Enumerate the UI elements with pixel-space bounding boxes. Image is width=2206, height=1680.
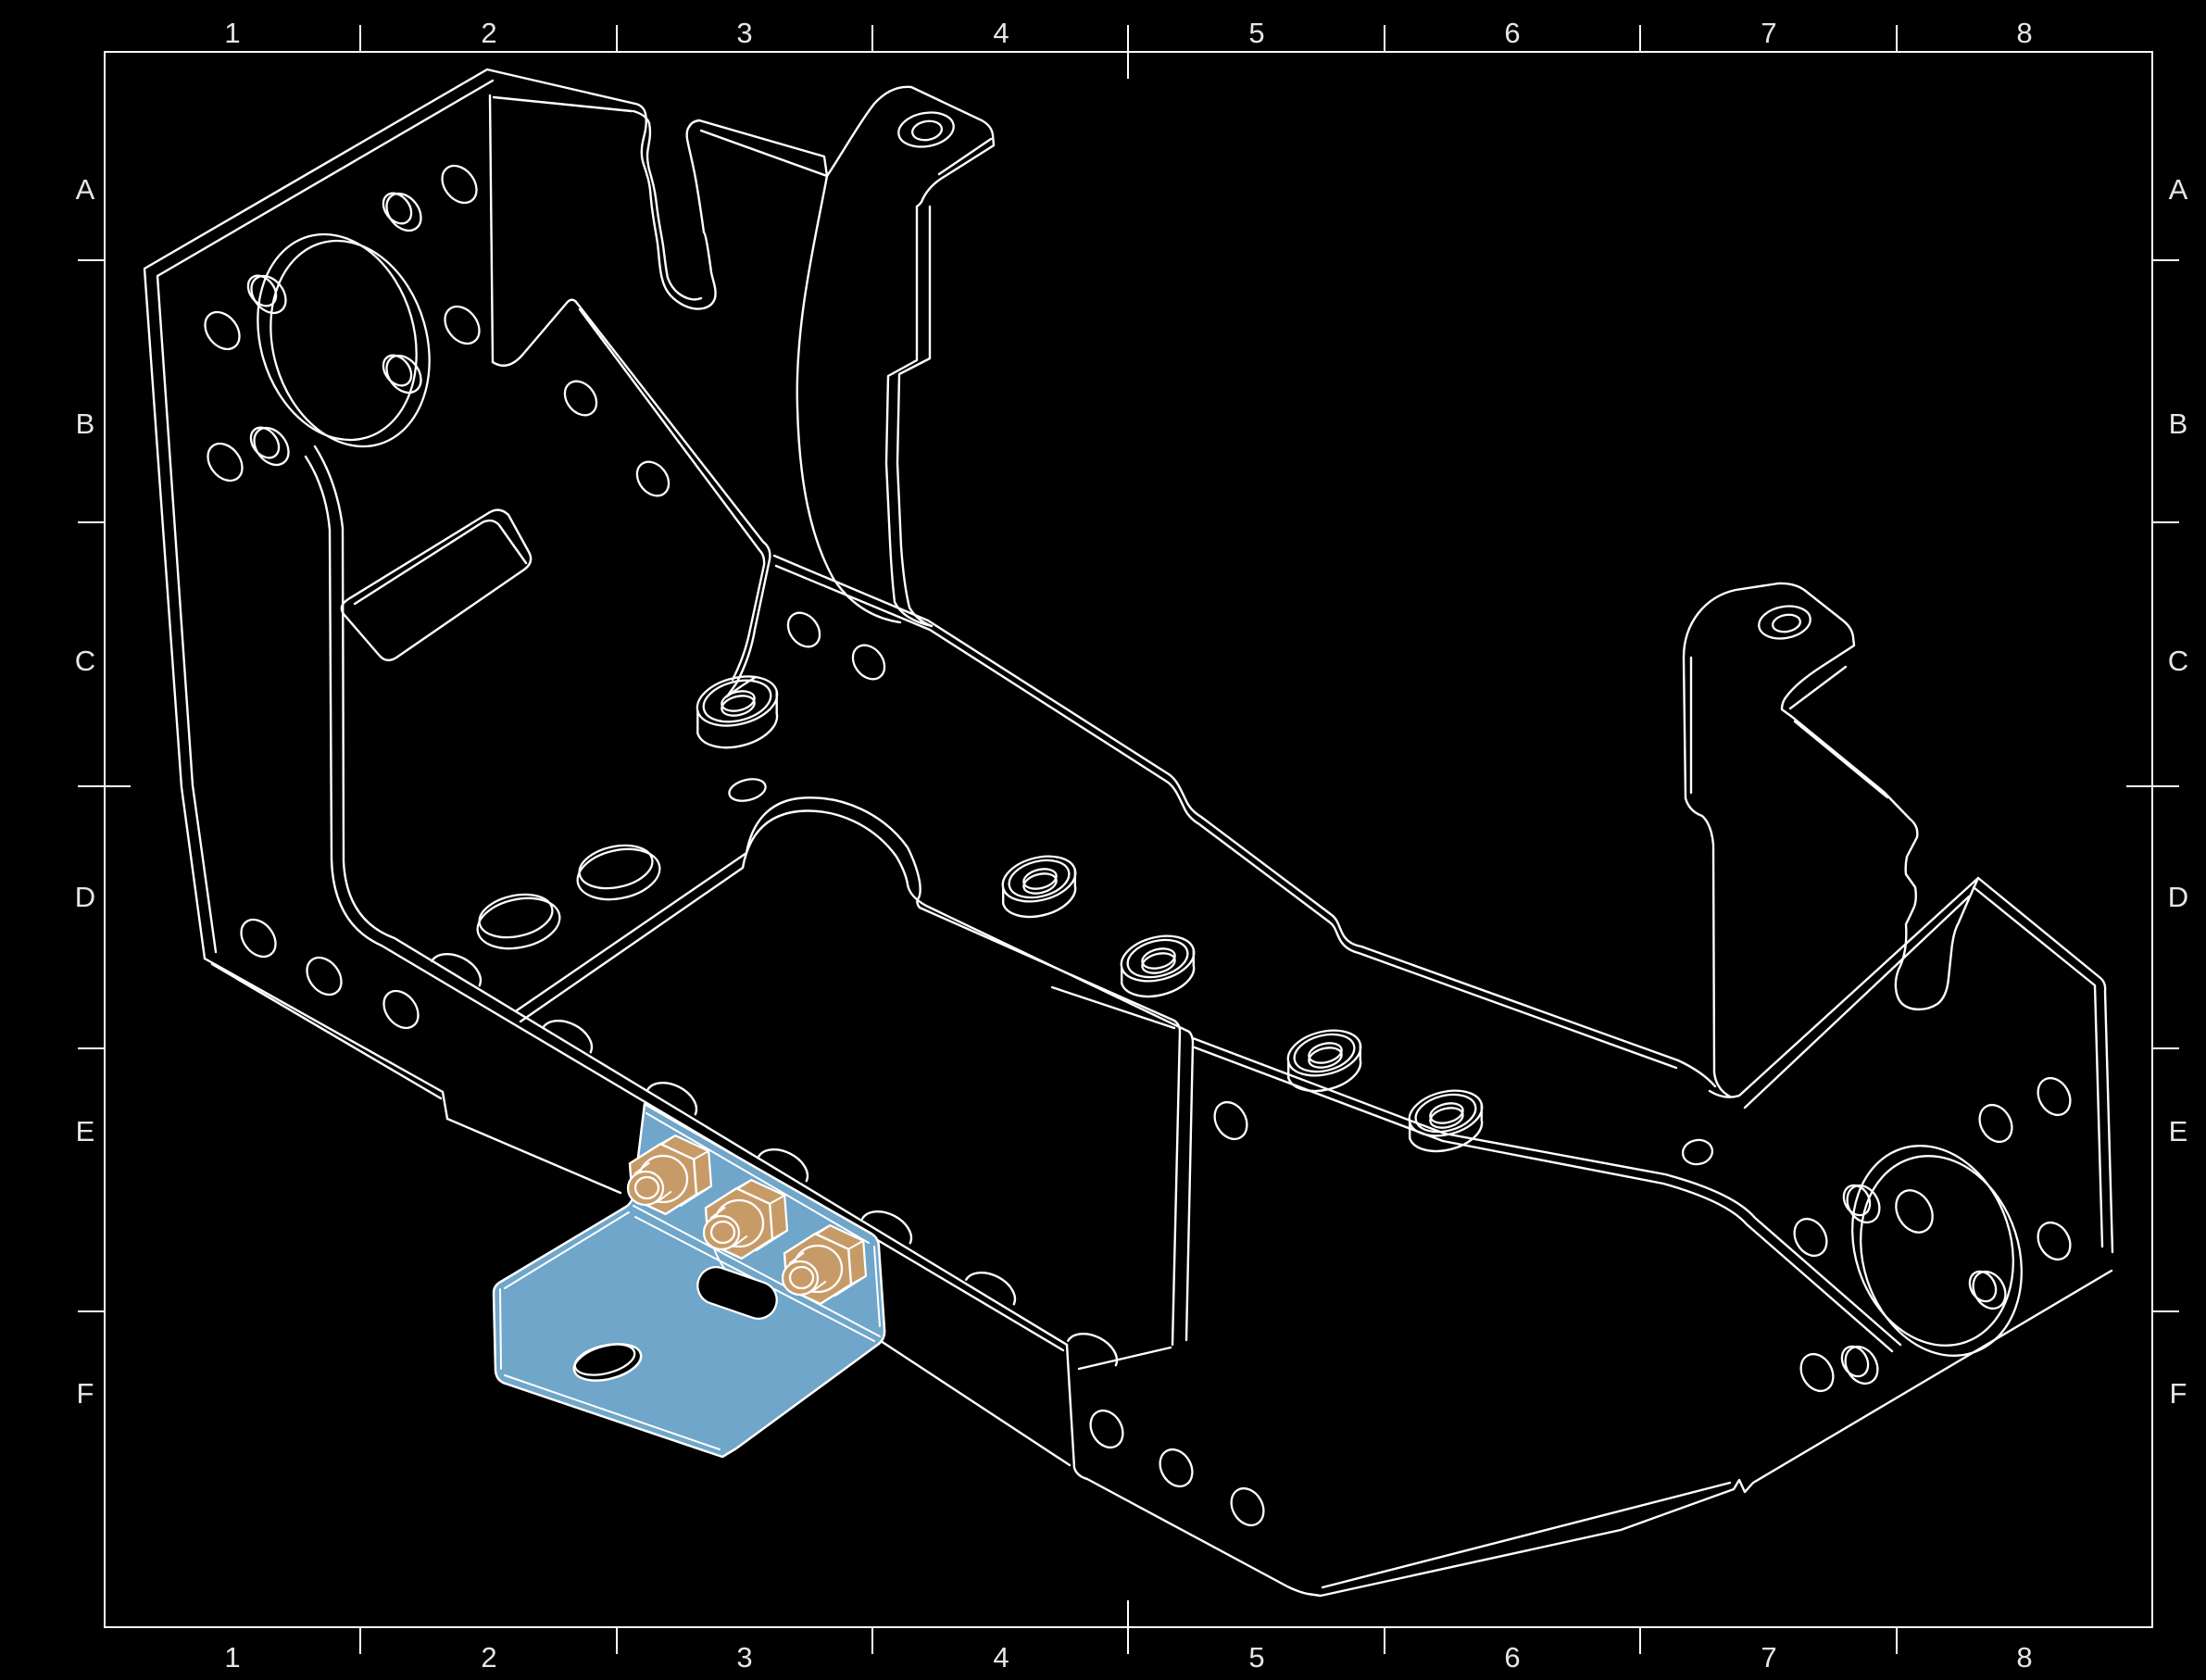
svg-text:D: D bbox=[75, 881, 95, 913]
svg-text:1: 1 bbox=[224, 17, 240, 49]
svg-text:A: A bbox=[76, 173, 95, 206]
svg-text:C: C bbox=[2168, 645, 2188, 677]
svg-text:F: F bbox=[2170, 1377, 2187, 1410]
svg-text:8: 8 bbox=[2016, 1641, 2032, 1674]
svg-text:5: 5 bbox=[1248, 17, 1264, 49]
svg-text:B: B bbox=[2169, 407, 2188, 440]
svg-text:C: C bbox=[75, 645, 95, 677]
svg-text:F: F bbox=[77, 1377, 94, 1410]
svg-text:7: 7 bbox=[1761, 17, 1776, 49]
svg-text:6: 6 bbox=[1504, 17, 1520, 49]
svg-text:5: 5 bbox=[1248, 1641, 1264, 1674]
svg-text:4: 4 bbox=[993, 1641, 1009, 1674]
svg-text:3: 3 bbox=[736, 1641, 752, 1674]
svg-text:E: E bbox=[76, 1115, 95, 1147]
svg-text:A: A bbox=[2169, 173, 2188, 206]
svg-text:7: 7 bbox=[1761, 1641, 1776, 1674]
svg-text:6: 6 bbox=[1504, 1641, 1520, 1674]
svg-text:1: 1 bbox=[224, 1641, 240, 1674]
svg-text:4: 4 bbox=[993, 17, 1009, 49]
svg-text:D: D bbox=[2168, 881, 2188, 913]
svg-text:B: B bbox=[76, 407, 95, 440]
svg-text:3: 3 bbox=[736, 17, 752, 49]
svg-text:2: 2 bbox=[481, 17, 496, 49]
svg-text:E: E bbox=[2169, 1115, 2188, 1147]
svg-text:8: 8 bbox=[2016, 17, 2032, 49]
svg-text:2: 2 bbox=[481, 1641, 496, 1674]
